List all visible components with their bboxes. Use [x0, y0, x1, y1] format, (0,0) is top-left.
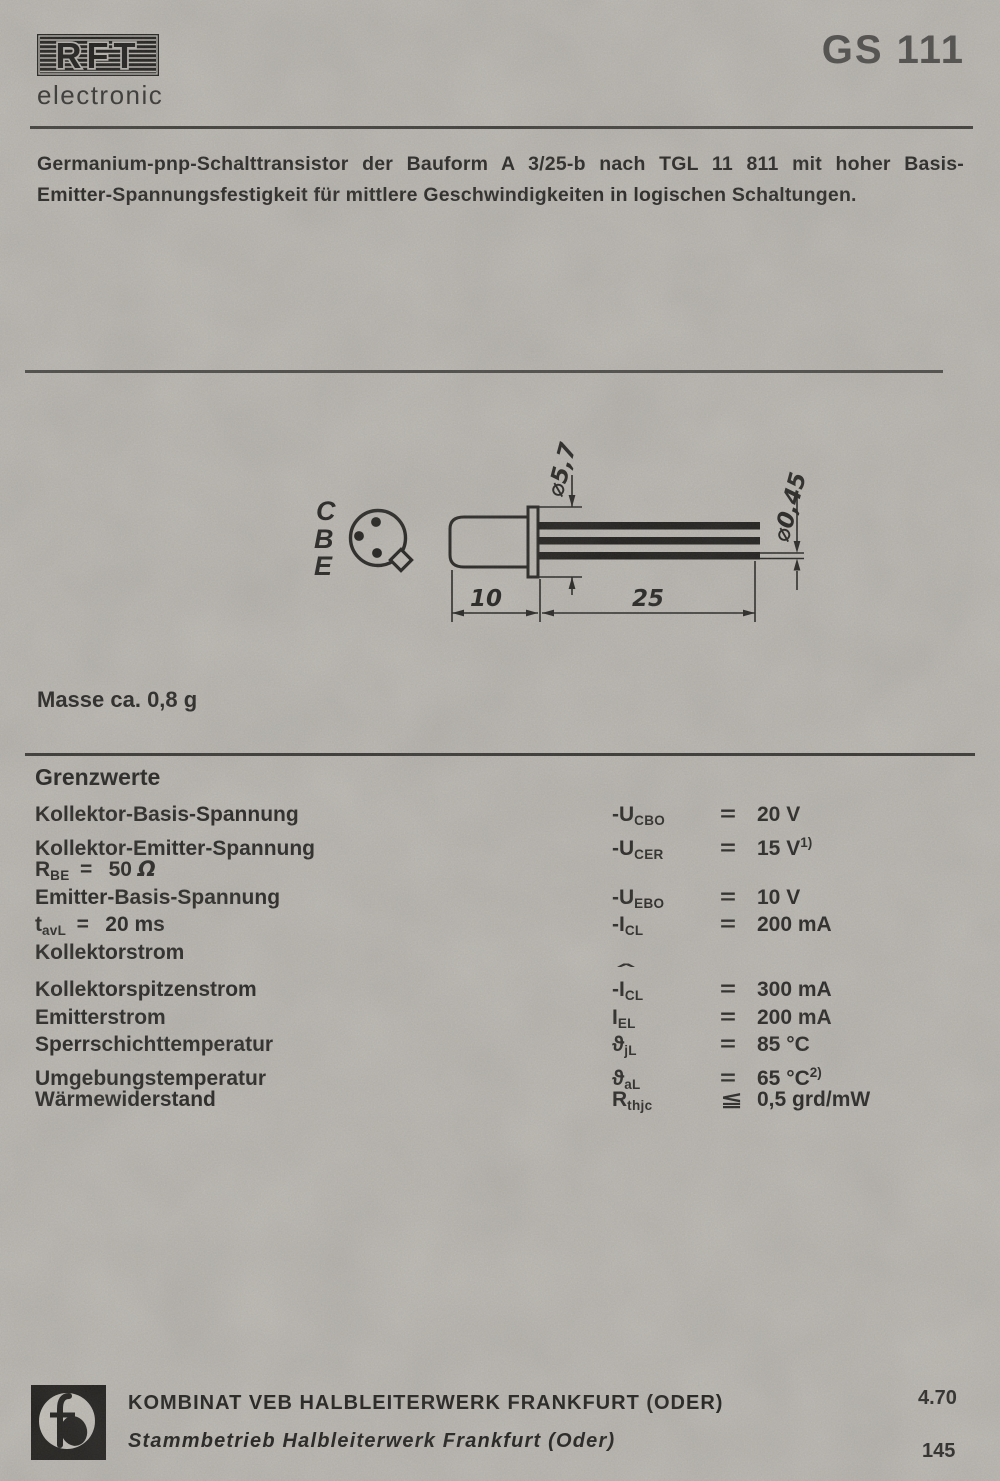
limits-row: WärmewiderstandRthjc≦0,5 grd/mW	[35, 1086, 970, 1114]
limit-parameter-label: Kollektorstrom	[35, 939, 612, 967]
limit-relation-sign: =	[720, 801, 768, 829]
description: Germanium-pnp-Schalttransistor der Baufo…	[37, 149, 964, 211]
limits-rule	[25, 753, 975, 756]
limit-symbol: Rthjc	[612, 1086, 720, 1120]
peak-hat-mark: ˆ	[618, 963, 634, 983]
limit-value: 85 °C	[757, 1031, 970, 1059]
brand-subtitle: electronic	[37, 80, 163, 111]
limits-row: tavL = 20 ms-ICL=200 mA	[35, 911, 970, 939]
hfo-monogram-icon	[30, 1384, 107, 1461]
description-line: Germanium-pnp-Schalttransistor der Baufo…	[37, 149, 964, 180]
limits-row: Kollektorspitzenstrom-IˆCL=300 mA	[35, 976, 970, 1004]
limit-parameter-label: Emitterstrom	[35, 1004, 612, 1032]
limit-relation-sign: ≦	[720, 1086, 768, 1114]
transistor-body	[450, 517, 528, 567]
product-code: GS 111	[822, 28, 965, 73]
pinout-key-tab	[390, 549, 411, 570]
limits-table: Kollektor-Basis-Spannung-UCBO=20 VKollek…	[35, 801, 970, 1114]
mass-note: Masse ca. 0,8 g	[37, 687, 197, 713]
limits-row: Kollektorstrom	[35, 939, 970, 967]
pin-dot-base	[354, 531, 364, 541]
limit-value: 0,5 grd/mW	[757, 1086, 970, 1114]
pin-label-b: B	[314, 524, 334, 554]
dim-body-length: 10	[470, 586, 502, 612]
rft-logo-text: RFT	[56, 35, 141, 76]
limit-symbol: -UCER	[612, 835, 720, 869]
limit-relation-sign: =	[720, 911, 768, 939]
flange	[528, 507, 538, 577]
limit-symbol: -ICL	[612, 911, 720, 945]
rft-logo: RFT	[37, 34, 159, 76]
limit-value: 20 V	[757, 801, 970, 829]
limits-heading: Grenzwerte	[35, 764, 160, 791]
dimensions: ⌀5,7 ⌀0,45 10 25	[452, 440, 812, 622]
pin-label-e: E	[314, 551, 333, 581]
limits-row: Kollektor-Basis-Spannung-UCBO=20 V	[35, 801, 970, 829]
company-subsidiary: Stammbetrieb Halbleiterwerk Frankfurt (O…	[128, 1430, 615, 1453]
pin-dot-emitter	[372, 548, 382, 558]
dim-body-diameter: ⌀5,7	[543, 440, 582, 499]
limit-relation-sign: =	[720, 1031, 768, 1059]
pinout-view: C B E	[314, 496, 412, 581]
limit-value: 15 V1)	[757, 829, 970, 863]
pin-dot-collector	[371, 517, 381, 527]
datasheet-page: RFT electronic GS 111 Germanium-pnp-Scha…	[0, 0, 1000, 1481]
limits-row: EmitterstromIEL=200 mA	[35, 1004, 970, 1032]
limit-value: 200 mA	[757, 1004, 970, 1032]
limit-value: 200 mA	[757, 911, 970, 939]
section-rule	[25, 370, 943, 373]
limits-row: SperrschichttemperaturϑjL=85 °C	[35, 1031, 970, 1059]
limits-row: Emitter-Basis-Spannung-UEBO=10 V	[35, 884, 970, 912]
lead-wire-thin	[760, 553, 804, 559]
dim-lead-diameter: ⌀0,45	[769, 470, 812, 545]
limit-relation-sign: =	[720, 835, 768, 863]
transistor-drawing: C B E	[290, 430, 820, 650]
limit-relation-sign: =	[720, 976, 768, 1004]
limit-symbol: -UCBO	[612, 801, 720, 835]
limits-row: Kollektor-Emitter-Spannung-UCER=15 V1)	[35, 829, 970, 857]
lead-bar	[538, 522, 760, 530]
limit-parameter-label: Kollektor-Basis-Spannung	[35, 801, 612, 829]
limit-parameter-label: Emitter-Basis-Spannung	[35, 884, 612, 912]
date-code: 4.70	[918, 1387, 957, 1410]
limit-value: 300 mA	[757, 976, 970, 1004]
dim-lead-length: 25	[632, 586, 664, 612]
lead-bar	[538, 552, 760, 560]
limit-relation-sign: =	[720, 1004, 768, 1032]
lead-bar	[538, 537, 760, 545]
side-view	[450, 507, 804, 577]
limits-rows: Kollektor-Basis-Spannung-UCBO=20 VKollek…	[35, 801, 970, 1114]
description-line: Emitter-Spannungsfestigkeit für mittlere…	[37, 180, 964, 211]
header-rule	[30, 126, 973, 129]
limit-parameter-label: Kollektorspitzenstrom	[35, 976, 612, 1004]
pin-label-c: C	[316, 496, 336, 526]
limit-symbol: ϑjL	[612, 1031, 720, 1065]
company-name: KOMBINAT VEB HALBLEITERWERK FRANKFURT (O…	[128, 1392, 723, 1415]
limit-relation-sign: =	[720, 884, 768, 912]
limit-value: 10 V	[757, 884, 970, 912]
page-number: 145	[922, 1440, 955, 1463]
limit-parameter-label: Wärmewiderstand	[35, 1086, 612, 1114]
paper-grain-texture	[0, 0, 1000, 1481]
limits-row: UmgebungstemperaturϑaL=65 °C2)	[35, 1059, 970, 1087]
limit-parameter-label: Sperrschichttemperatur	[35, 1031, 612, 1059]
